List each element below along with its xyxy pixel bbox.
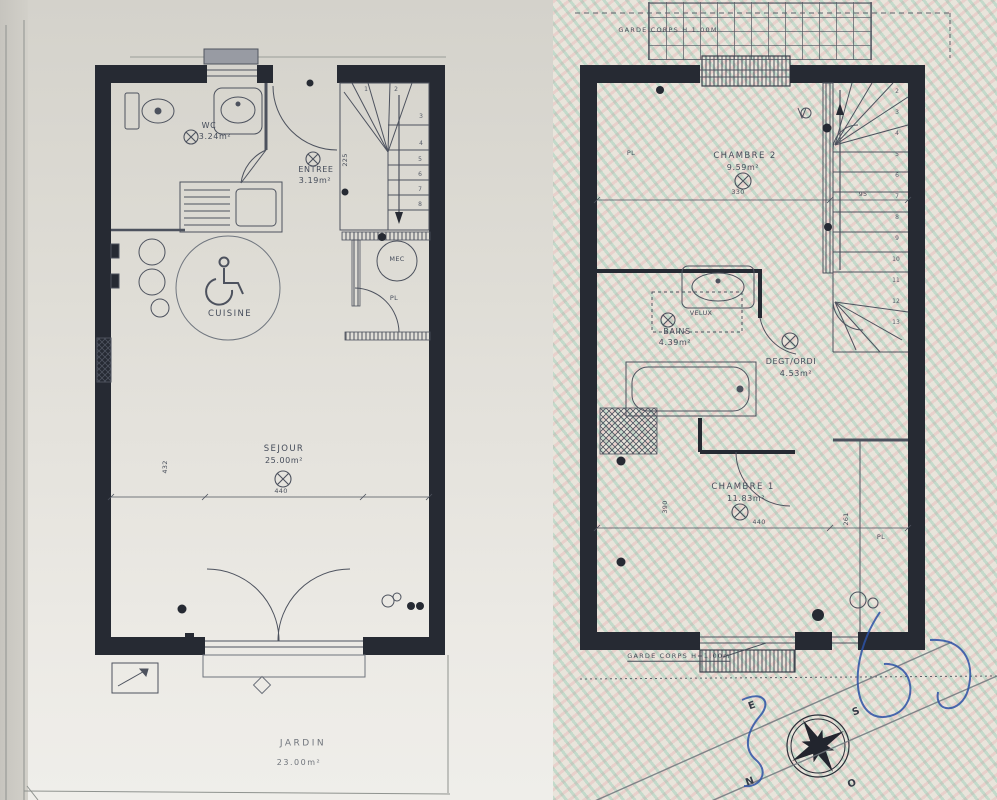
entree-label: ENTREE (298, 166, 333, 174)
entree-area: 3.19m² (299, 177, 331, 185)
stair-arrow-up (836, 103, 844, 115)
stair-number: 11 (892, 278, 900, 284)
stairwell-partition (823, 83, 833, 273)
jardin-area: 23.00m² (277, 759, 321, 767)
chambre1-area: 11.83m² (727, 495, 765, 503)
stair-number: 9 (895, 236, 899, 242)
dim-261: 261 (843, 512, 850, 525)
balcony-top (702, 56, 790, 86)
toilet-fixture (125, 93, 174, 129)
cuisine-turning-circle (176, 236, 280, 340)
dim-440-first: 440 (752, 519, 765, 526)
stair-number: 8 (895, 215, 899, 221)
crosshatch-zone (600, 408, 657, 454)
stair-number: 2 (394, 87, 398, 93)
kitchen-counter (180, 182, 282, 232)
stair-number: 6 (895, 173, 899, 179)
bains-label: BAINS (663, 328, 690, 336)
jardin-label: JARDIN (280, 740, 326, 749)
wheelchair-icon (206, 258, 243, 305)
sejour-dim-line (108, 494, 432, 500)
floor-plan-sheet: WC 3.24m² ENTREE 3.19m² CUISINE MEC PL S… (0, 0, 997, 800)
first-socket-symbols (850, 592, 878, 608)
stair-number: 3 (895, 110, 899, 116)
chambre2-label: CHAMBRE 2 (713, 152, 776, 161)
pivot-dot (378, 233, 386, 241)
ground-bottom-threshold (205, 641, 363, 647)
entree-door-arc (273, 86, 337, 150)
dim-95: 95 (859, 191, 868, 198)
dim-432-ground: 432 (162, 460, 169, 473)
chambre2-dim-line (594, 197, 911, 203)
dim-330: 330 (731, 189, 744, 196)
first-closet-lines (833, 440, 908, 632)
stair-number: 3 (419, 114, 423, 120)
stair-number: 7 (895, 194, 899, 200)
stair-number: 2 (895, 89, 899, 95)
pl-chambre1-label: PL (877, 534, 885, 541)
cuisine-label: CUISINE (208, 310, 252, 319)
ground-walls (95, 65, 445, 655)
washbasin-fixture (214, 88, 262, 134)
ground-hatched-walls (342, 232, 430, 340)
stair-number: 5 (418, 157, 422, 163)
laundry-fixtures (111, 239, 169, 317)
drain-icon (112, 663, 158, 693)
chambre1-dim-line (594, 525, 911, 531)
ground-partitions (111, 83, 337, 230)
ground-dots (178, 80, 425, 643)
wall-light-symbol (798, 108, 811, 118)
blue-pen-marks (742, 612, 970, 786)
wc-area: 3.24m² (199, 133, 231, 141)
sejour-label: SEJOUR (264, 445, 305, 454)
stair-number: 1 (364, 87, 368, 93)
french-doors (207, 569, 350, 641)
dim-440-ground: 440 (274, 488, 287, 495)
water-heater-label: MEC (389, 256, 404, 263)
first-floor-plan (575, 13, 997, 679)
plan-linework (0, 0, 997, 800)
sejour-area: 25.00m² (265, 457, 303, 465)
garde-corps-bottom-label: GARDE CORPS H=1.00m (627, 653, 730, 662)
socket-symbols (382, 593, 401, 607)
stair-number: 4 (419, 141, 423, 147)
stair-number: 4 (895, 131, 899, 137)
chambre2-area: 9.59m² (727, 164, 759, 172)
ground-window-bay (204, 49, 258, 64)
wc-label: WC (202, 122, 217, 130)
terrace (203, 655, 365, 693)
dim-390: 390 (662, 500, 669, 513)
meter-box (97, 338, 111, 382)
garde-corps-top-label: GARDE CORPS H 1.00M (618, 27, 717, 34)
degt-area: 4.53m² (780, 370, 812, 378)
bains-area: 4.39m² (659, 339, 691, 347)
pl-chambre2-label: PL (627, 150, 635, 157)
first-dots (617, 86, 833, 621)
compass-rose (787, 715, 849, 777)
ground-staircase (340, 83, 429, 230)
stair-number: 8 (418, 202, 422, 208)
stair-number: 5 (895, 152, 899, 158)
dim-225-ground: 225 (342, 153, 349, 166)
stair-number: 6 (418, 172, 422, 178)
stair-arrow-down (395, 212, 403, 224)
dashed-survey-lines (575, 13, 997, 679)
chambre1-label: CHAMBRE 1 (711, 483, 774, 492)
stair-number: 7 (418, 187, 422, 193)
ground-top-window (207, 70, 257, 76)
velux-label: VELUX (690, 310, 713, 317)
stair-number: 10 (892, 257, 900, 263)
stair-number: 13 (892, 320, 900, 326)
stair-number: 12 (892, 299, 900, 305)
degt-label: DEGT/ORDI (766, 358, 817, 366)
pl-ground-label: PL (390, 295, 398, 302)
ground-floor-plan (95, 49, 445, 693)
